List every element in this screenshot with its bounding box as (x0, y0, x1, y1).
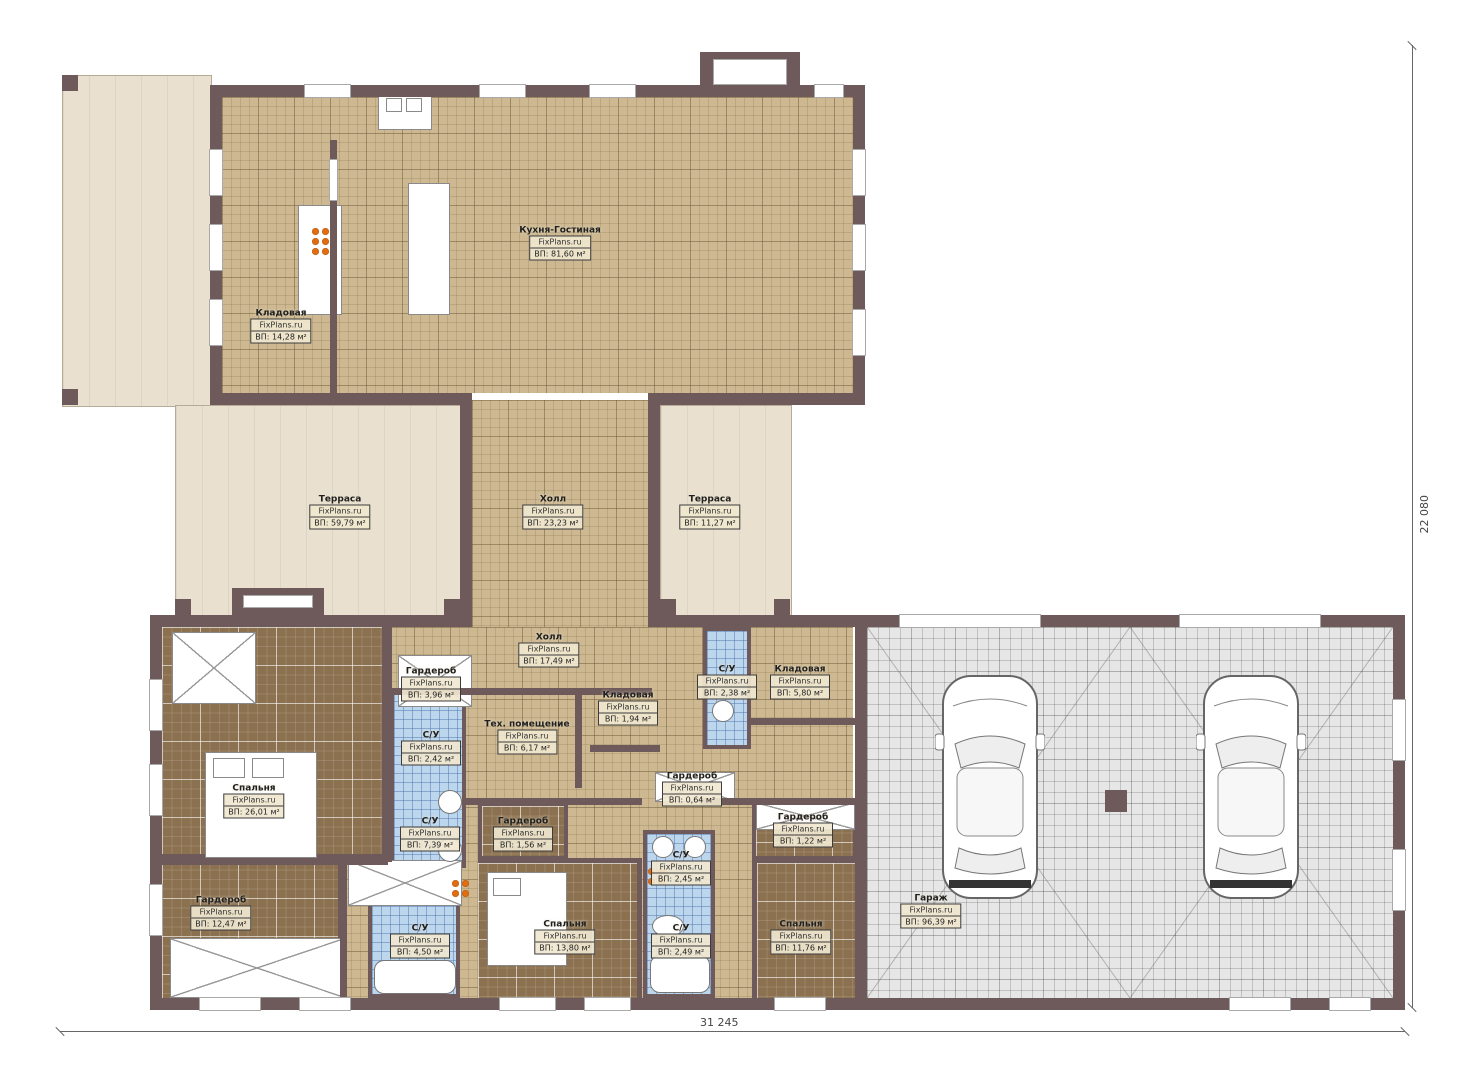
room-area: ВП: 0,64 м² (663, 795, 721, 806)
room-area: ВП: 5,80 м² (771, 688, 829, 699)
wall-segment (590, 745, 660, 752)
wall-segment (855, 615, 867, 1010)
terrace-post (660, 599, 676, 615)
room-label-pantry-1: КладоваяFixPlans.ruВП: 14,28 м² (250, 309, 311, 344)
room-area: ВП: 2,42 м² (402, 754, 460, 765)
watermark: FixPlans.ru (652, 935, 710, 947)
room-name: Гараж (914, 894, 947, 904)
window-opening (1230, 998, 1290, 1010)
watermark: FixPlans.ru (901, 905, 960, 917)
room-name: Кладовая (602, 691, 653, 701)
wall-segment (751, 718, 857, 725)
terrace-post (444, 599, 460, 615)
watermark: FixPlans.ru (310, 506, 369, 518)
watermark: FixPlans.ru (663, 783, 721, 795)
window-opening (590, 85, 635, 97)
dimension-line-right (1412, 45, 1413, 1008)
watermark: FixPlans.ru (519, 644, 578, 656)
room-info-box: FixPlans.ruВП: 6,17 м² (497, 730, 557, 755)
wall-segment (1393, 615, 1405, 1010)
pillow (252, 758, 284, 778)
room-area: ВП: 13,80 м² (535, 943, 594, 954)
car-top-view-icon (935, 672, 1045, 902)
wall-segment (648, 393, 865, 405)
wardrobe-cabinet (170, 938, 344, 998)
room-name: Терраса (319, 495, 362, 505)
window-opening (150, 680, 162, 730)
room-label-terrace-right: ТеррасаFixPlans.ruВП: 11,27 м² (679, 495, 740, 530)
room-name: Кухня-Гостиная (519, 226, 601, 236)
room-info-box: FixPlans.ruВП: 3,96 м² (401, 677, 461, 702)
sink-bowl (386, 98, 402, 112)
wall-segment (648, 393, 660, 627)
car-top-view-icon (1196, 672, 1306, 902)
room-area: ВП: 14,28 м² (251, 332, 310, 343)
room-label-hall-upper: ХоллFixPlans.ruВП: 23,23 м² (522, 495, 583, 530)
room-area: ВП: 23,23 м² (523, 518, 582, 529)
room-info-box: FixPlans.ruВП: 0,64 м² (662, 782, 722, 807)
window-opening (300, 998, 350, 1010)
watermark: FixPlans.ru (599, 702, 657, 714)
watermark: FixPlans.ru (680, 506, 739, 518)
porch-inner (244, 596, 312, 607)
window-opening (585, 998, 630, 1010)
watermark: FixPlans.ru (652, 862, 710, 874)
window-opening (853, 225, 865, 270)
room-area: ВП: 7,39 м² (401, 840, 459, 851)
watermark: FixPlans.ru (402, 742, 460, 754)
room-name: С/У (412, 924, 429, 934)
room-area: ВП: 2,49 м² (652, 947, 710, 958)
bathtub-icon (374, 960, 456, 994)
watermark: FixPlans.ru (402, 678, 460, 690)
toilet-icon (712, 700, 734, 722)
room-info-box: FixPlans.ruВП: 11,27 м² (679, 505, 740, 530)
room-area: ВП: 17,49 м² (519, 656, 578, 667)
room-name: Кладовая (774, 665, 825, 675)
stove-burners-icon (312, 228, 329, 255)
room-info-box: FixPlans.ruВП: 17,49 м² (518, 643, 579, 668)
room-name: Спальня (543, 920, 586, 930)
room-label-garage: ГаражFixPlans.ruВП: 96,39 м² (900, 894, 961, 929)
window-opening (210, 300, 222, 345)
terrace-post (62, 75, 78, 91)
room-info-box: FixPlans.ruВП: 13,80 м² (534, 930, 595, 955)
room-label-pantry-3: КладоваяFixPlans.ruВП: 1,94 м² (598, 691, 658, 726)
pillow (493, 878, 521, 896)
room-name: Гардероб (196, 896, 247, 906)
room-area: ВП: 1,56 м² (494, 840, 552, 851)
watermark: FixPlans.ru (771, 931, 830, 943)
room-area: ВП: 11,27 м² (680, 518, 739, 529)
watermark: FixPlans.ru (498, 731, 556, 743)
room-info-box: FixPlans.ruВП: 2,49 м² (651, 934, 711, 959)
terrace-top-left-floor (62, 75, 212, 407)
room-info-box: FixPlans.ruВП: 4,50 м² (390, 934, 450, 959)
window-opening (1393, 700, 1405, 760)
room-label-wc-2: С/УFixPlans.ruВП: 2,42 м² (401, 731, 461, 766)
room-area: ВП: 3,96 м² (402, 690, 460, 701)
window-opening (200, 998, 260, 1010)
room-name: Холл (540, 495, 566, 505)
room-area: ВП: 81,60 м² (530, 249, 589, 260)
room-label-bedroom-right: СпальняFixPlans.ruВП: 11,76 м² (770, 920, 831, 955)
sink-icon (438, 790, 462, 814)
terrace-post (62, 389, 78, 405)
pillow (213, 758, 245, 778)
window-opening (150, 765, 162, 815)
room-info-box: FixPlans.ruВП: 11,76 м² (770, 930, 831, 955)
watermark: FixPlans.ru (523, 506, 582, 518)
room-name: Кладовая (255, 309, 306, 319)
room-info-box: FixPlans.ruВП: 96,39 м² (900, 904, 961, 929)
watermark: FixPlans.ru (401, 828, 459, 840)
room-label-wc-5: С/УFixPlans.ruВП: 2,45 м² (651, 851, 711, 886)
room-name: Терраса (689, 495, 732, 505)
kitchen-island (408, 183, 450, 315)
room-info-box: FixPlans.ruВП: 23,23 м² (522, 505, 583, 530)
room-info-box: FixPlans.ruВП: 2,38 м² (697, 675, 757, 700)
floor-plan-canvas: Кухня-ГостинаяFixPlans.ruВП: 81,60 м² Кл… (0, 0, 1474, 1080)
room-name: Гардероб (778, 813, 829, 823)
room-label-wardrobe-5: ГардеробFixPlans.ruВП: 12,47 м² (190, 896, 251, 931)
room-info-box: FixPlans.ruВП: 81,60 м² (529, 236, 590, 261)
room-name: С/У (673, 924, 690, 934)
room-area: ВП: 59,79 м² (310, 518, 369, 529)
room-label-hall-lower: ХоллFixPlans.ruВП: 17,49 м² (518, 633, 579, 668)
room-info-box: FixPlans.ruВП: 14,28 м² (250, 319, 311, 344)
garage-door-opening (900, 615, 1040, 627)
room-name: Спальня (232, 784, 275, 794)
wall-segment (575, 688, 582, 788)
room-info-box: FixPlans.ruВП: 12,47 м² (190, 906, 251, 931)
room-area: ВП: 2,45 м² (652, 874, 710, 885)
room-name: Тех. помещение (484, 720, 569, 730)
watermark: FixPlans.ru (771, 676, 829, 688)
window-opening (815, 85, 843, 97)
room-name: Гардероб (406, 667, 457, 677)
watermark: FixPlans.ru (698, 676, 756, 688)
room-info-box: FixPlans.ruВП: 1,56 м² (493, 827, 553, 852)
window-opening (775, 998, 825, 1010)
watermark: FixPlans.ru (535, 931, 594, 943)
wardrobe-cabinet (172, 632, 256, 704)
bathtub-icon (650, 955, 710, 993)
dimension-line-bottom (60, 1031, 1405, 1032)
wall-segment (150, 615, 472, 627)
room-label-wc-3: С/УFixPlans.ruВП: 7,39 м² (400, 817, 460, 852)
room-name: Спальня (779, 920, 822, 930)
room-name: Гардероб (498, 817, 549, 827)
wall-segment (385, 627, 392, 862)
window-opening (500, 998, 555, 1010)
window-opening (853, 310, 865, 355)
room-label-wardrobe-2: ГардеробFixPlans.ruВП: 1,56 м² (493, 817, 553, 852)
watermark: FixPlans.ru (251, 320, 310, 332)
room-label-wardrobe-3: ГардеробFixPlans.ruВП: 0,64 м² (662, 772, 722, 807)
room-label-bedroom-center: СпальняFixPlans.ruВП: 13,80 м² (534, 920, 595, 955)
watermark: FixPlans.ru (391, 935, 449, 947)
watermark: FixPlans.ru (774, 824, 832, 836)
window-opening (150, 885, 162, 935)
window-opening (210, 225, 222, 270)
watermark: FixPlans.ru (494, 828, 552, 840)
room-label-wc-1: С/УFixPlans.ruВП: 2,38 м² (697, 665, 757, 700)
watermark: FixPlans.ru (224, 795, 283, 807)
room-area: ВП: 4,50 м² (391, 947, 449, 958)
window-opening (305, 85, 350, 97)
room-name: С/У (673, 851, 690, 861)
wall-segment (162, 858, 388, 865)
room-label-terrace-left: ТеррасаFixPlans.ruВП: 59,79 м² (309, 495, 370, 530)
room-area: ВП: 12,47 м² (191, 919, 250, 930)
terrace-post (774, 599, 790, 615)
room-info-box: FixPlans.ruВП: 26,01 м² (223, 794, 284, 819)
room-name: С/У (422, 817, 439, 827)
room-info-box: FixPlans.ruВП: 2,42 м² (401, 741, 461, 766)
room-name: Холл (536, 633, 562, 643)
room-label-bedroom-left: СпальняFixPlans.ruВП: 26,01 м² (223, 784, 284, 819)
watermark: FixPlans.ru (530, 237, 589, 249)
room-area: ВП: 96,39 м² (901, 917, 960, 928)
garage-door-opening (1180, 615, 1320, 627)
room-info-box: FixPlans.ruВП: 59,79 м² (309, 505, 370, 530)
room-label-tech-room: Тех. помещениеFixPlans.ruВП: 6,17 м² (484, 720, 569, 755)
room-name: С/У (719, 665, 736, 675)
wall-segment (462, 798, 642, 805)
room-label-pantry-2: КладоваяFixPlans.ruВП: 5,80 м² (770, 665, 830, 700)
room-name: Гардероб (667, 772, 718, 782)
room-info-box: FixPlans.ruВП: 1,94 м² (598, 701, 658, 726)
window-opening (853, 150, 865, 195)
room-area: ВП: 26,01 м² (224, 807, 283, 818)
room-area: ВП: 1,22 м² (774, 836, 832, 847)
room-info-box: FixPlans.ruВП: 7,39 м² (400, 827, 460, 852)
room-info-box: FixPlans.ruВП: 2,45 м² (651, 861, 711, 886)
room-info-box: FixPlans.ruВП: 1,22 м² (773, 823, 833, 848)
room-label-kitchen-living: Кухня-ГостинаяFixPlans.ruВП: 81,60 м² (519, 226, 601, 261)
room-name: С/У (423, 731, 440, 741)
wall-segment (700, 798, 857, 805)
wall-segment (340, 858, 347, 998)
window-opening (480, 85, 525, 97)
room-label-wardrobe-1: ГардеробFixPlans.ruВП: 3,96 м² (401, 667, 461, 702)
window-opening (210, 150, 222, 195)
wall-segment (460, 393, 472, 627)
chimney-inner (714, 60, 786, 84)
room-label-wc-4: С/УFixPlans.ruВП: 4,50 м² (390, 924, 450, 959)
room-area: ВП: 6,17 м² (498, 743, 556, 754)
sink-bowl (406, 98, 422, 112)
window-opening (1330, 998, 1370, 1010)
watermark: FixPlans.ru (191, 907, 250, 919)
room-area: ВП: 2,38 м² (698, 688, 756, 699)
room-label-wardrobe-4: ГардеробFixPlans.ruВП: 1,22 м² (773, 813, 833, 848)
room-area: ВП: 11,76 м² (771, 943, 830, 954)
door-opening (330, 160, 337, 200)
terrace-post (175, 599, 191, 615)
room-area: ВП: 1,94 м² (599, 714, 657, 725)
window-opening (1393, 850, 1405, 910)
dimension-label-height: 22 080 (1418, 495, 1431, 534)
entry-cabinet (348, 860, 462, 906)
wall-segment (210, 393, 472, 405)
room-info-box: FixPlans.ruВП: 5,80 м² (770, 675, 830, 700)
stove-burners-icon (452, 880, 469, 897)
room-label-wc-6: С/УFixPlans.ruВП: 2,49 м² (651, 924, 711, 959)
dimension-label-width: 31 245 (700, 1016, 739, 1029)
